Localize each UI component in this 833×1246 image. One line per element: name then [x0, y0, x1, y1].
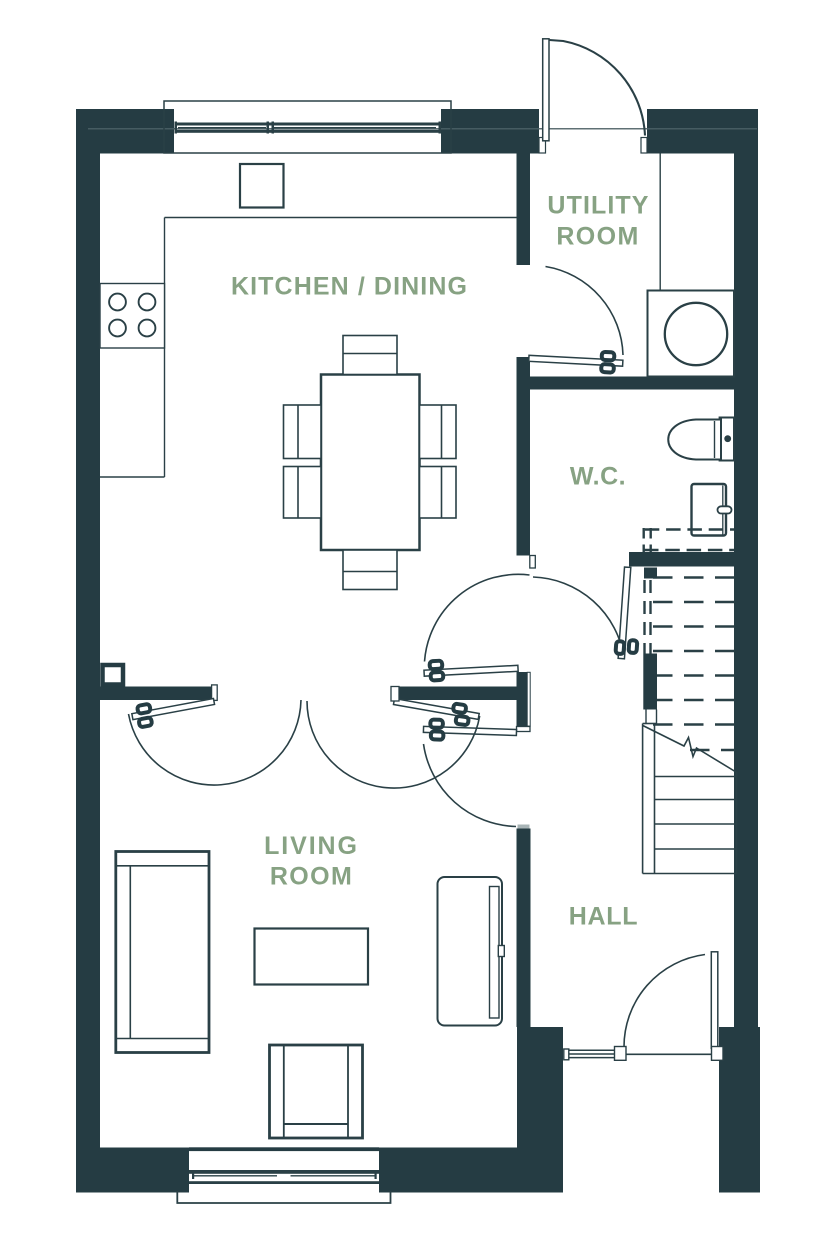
- svg-text:ROOM: ROOM: [556, 223, 639, 251]
- svg-text:ROOM: ROOM: [270, 863, 353, 891]
- svg-text:LIVING: LIVING: [264, 832, 359, 860]
- svg-text:HALL: HALL: [569, 903, 638, 931]
- svg-text:W.C.: W.C.: [570, 463, 626, 491]
- svg-text:UTILITY: UTILITY: [547, 192, 649, 220]
- svg-text:KITCHEN / DINING: KITCHEN / DINING: [231, 273, 468, 301]
